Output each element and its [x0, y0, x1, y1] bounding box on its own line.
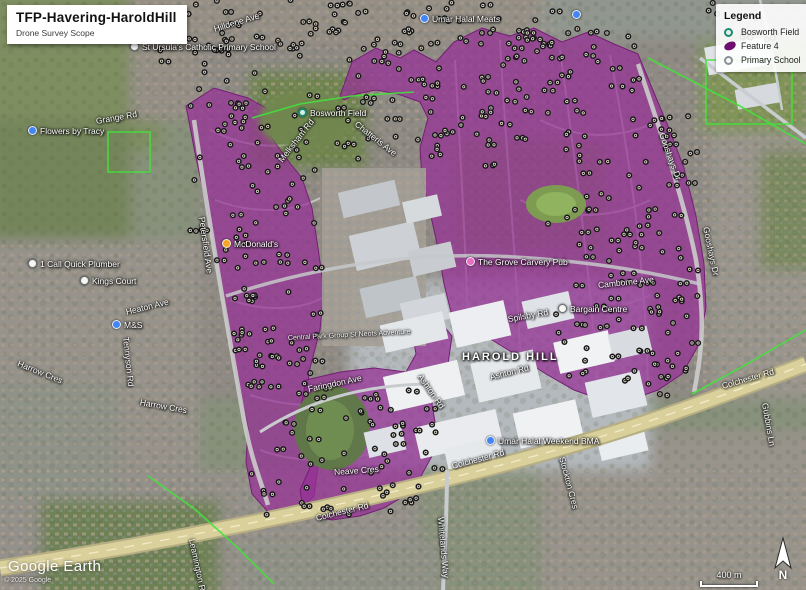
survey-marker: [292, 113, 297, 118]
survey-marker: [276, 356, 281, 361]
survey-marker: [308, 371, 313, 376]
survey-marker: [525, 38, 530, 43]
survey-marker: [591, 54, 596, 59]
poi-label: Flowers by Tracy: [28, 126, 104, 136]
survey-marker: [239, 212, 244, 217]
survey-marker: [265, 169, 270, 174]
survey-marker: [187, 36, 192, 41]
survey-marker: [443, 128, 448, 133]
survey-marker: [282, 204, 287, 209]
label-text: Umar Halal Meats: [432, 14, 500, 24]
survey-marker: [390, 98, 395, 103]
label-text: Flowers by Tracy: [40, 126, 104, 136]
compass-north-arrow[interactable]: N: [764, 536, 802, 582]
survey-marker: [340, 2, 345, 7]
bosworth-field-icon: [724, 28, 738, 37]
survey-marker: [320, 458, 325, 463]
survey-marker: [648, 123, 653, 128]
survey-marker: [706, 8, 711, 13]
survey-marker: [560, 73, 565, 78]
survey-marker: [438, 152, 443, 157]
area-label: HAROLD HILL: [462, 352, 559, 362]
survey-marker: [363, 396, 368, 401]
survey-marker: [577, 153, 582, 158]
survey-marker: [657, 231, 662, 236]
survey-marker: [356, 74, 361, 79]
survey-marker: [591, 45, 596, 50]
survey-marker: [646, 381, 651, 386]
survey-marker: [303, 260, 308, 265]
legend-item-feature-4: Feature 4: [724, 41, 806, 51]
survey-marker: [640, 326, 645, 331]
survey-marker: [318, 311, 323, 316]
survey-marker: [626, 376, 631, 381]
survey-marker: [416, 484, 421, 489]
survey-marker: [188, 104, 193, 109]
survey-marker: [411, 14, 416, 19]
survey-marker: [507, 41, 512, 46]
survey-marker: [291, 43, 296, 48]
survey-marker: [587, 207, 592, 212]
survey-marker: [252, 71, 257, 76]
survey-marker: [433, 133, 438, 138]
survey-marker: [633, 133, 638, 138]
survey-marker: [243, 347, 248, 352]
survey-marker: [529, 109, 534, 114]
survey-marker: [548, 80, 553, 85]
survey-marker: [577, 159, 582, 164]
survey-marker: [430, 96, 435, 101]
survey-marker: [605, 159, 610, 164]
survey-marker: [616, 317, 621, 322]
survey-marker: [188, 228, 193, 233]
survey-marker: [658, 392, 663, 397]
survey-marker: [274, 205, 279, 210]
survey-marker: [616, 238, 621, 243]
poi-white-poi-icon[interactable]: [80, 276, 89, 285]
survey-marker: [378, 405, 383, 410]
survey-marker: [505, 98, 510, 103]
survey-marker: [609, 273, 614, 278]
survey-marker: [310, 407, 315, 412]
survey-marker: [246, 164, 251, 169]
survey-marker: [290, 430, 295, 435]
survey-marker: [311, 312, 316, 317]
survey-marker: [264, 512, 269, 517]
survey-marker: [335, 3, 340, 8]
survey-marker: [207, 103, 212, 108]
survey-marker: [637, 224, 642, 229]
survey-marker: [247, 298, 252, 303]
poi-blue-poi-icon[interactable]: [112, 320, 121, 329]
survey-marker: [406, 27, 411, 32]
poi-pink-poi-icon[interactable]: [466, 257, 475, 266]
survey-marker: [313, 266, 318, 271]
survey-marker: [533, 18, 538, 23]
survey-marker: [599, 191, 604, 196]
poi-teal-poi-icon[interactable]: [298, 108, 307, 117]
poi-blue-poi-icon[interactable]: [572, 10, 581, 19]
survey-marker: [424, 407, 429, 412]
survey-marker: [609, 296, 614, 301]
survey-marker: [313, 26, 318, 31]
label-text: 1 Call Quick Plumber: [40, 259, 120, 269]
survey-marker: [621, 271, 626, 276]
survey-marker: [307, 93, 312, 98]
survey-marker: [299, 41, 304, 46]
survey-marker: [508, 122, 513, 127]
survey-marker: [243, 254, 248, 259]
survey-marker: [231, 213, 236, 218]
survey-marker: [684, 281, 689, 286]
survey-marker: [555, 80, 560, 85]
poi-blue-poi-icon[interactable]: [420, 14, 429, 23]
survey-marker: [278, 42, 283, 47]
survey-marker: [684, 366, 689, 371]
survey-marker: [373, 446, 378, 451]
survey-marker: [166, 59, 171, 64]
survey-marker: [710, 1, 715, 6]
survey-marker: [356, 156, 361, 161]
survey-marker: [595, 227, 600, 232]
survey-marker: [688, 151, 693, 156]
survey-marker: [229, 10, 234, 15]
survey-marker: [678, 256, 683, 261]
survey-marker: [672, 213, 677, 218]
survey-marker: [386, 61, 391, 66]
survey-marker: [222, 129, 227, 134]
survey-marker: [307, 504, 312, 509]
survey-marker: [269, 384, 274, 389]
survey-marker: [372, 59, 377, 64]
survey-marker: [257, 353, 262, 358]
survey-marker: [598, 325, 603, 330]
survey-marker: [514, 80, 519, 85]
survey-marker: [630, 88, 635, 93]
survey-marker: [581, 111, 586, 116]
survey-marker: [318, 408, 323, 413]
survey-marker: [675, 183, 680, 188]
survey-marker: [320, 359, 325, 364]
legend-item-bosworth-field: Bosworth Field: [724, 27, 806, 37]
survey-marker: [429, 41, 434, 46]
survey-marker: [322, 395, 327, 400]
survey-marker: [645, 223, 650, 228]
survey-marker: [229, 101, 234, 106]
survey-marker: [406, 388, 411, 393]
survey-marker: [587, 171, 592, 176]
survey-marker: [584, 52, 589, 57]
survey-marker: [655, 293, 660, 298]
survey-marker: [488, 3, 493, 8]
survey-marker: [428, 110, 433, 115]
feature-polygon-icon: [724, 42, 738, 50]
survey-marker: [589, 30, 594, 35]
poi-label: 1 Call Quick Plumber: [28, 259, 120, 269]
survey-marker: [240, 330, 245, 335]
survey-marker: [346, 141, 351, 146]
page-subtitle: Drone Survey Scope: [16, 28, 177, 38]
survey-marker: [667, 115, 672, 120]
survey-marker: [584, 254, 589, 259]
survey-marker: [404, 11, 409, 16]
survey-marker: [486, 143, 491, 148]
survey-marker: [505, 56, 510, 61]
survey-marker: [361, 100, 366, 105]
poi-label: [572, 10, 584, 20]
survey-marker: [584, 194, 589, 199]
survey-marker: [637, 77, 642, 82]
survey-marker: [645, 349, 650, 354]
survey-marker: [541, 44, 546, 49]
survey-marker: [417, 428, 422, 433]
survey-marker: [263, 327, 268, 332]
survey-marker: [481, 79, 486, 84]
survey-marker: [270, 492, 275, 497]
survey-marker: [233, 120, 238, 125]
survey-marker: [560, 55, 565, 60]
survey-marker: [312, 168, 317, 173]
survey-marker: [550, 55, 555, 60]
survey-marker: [646, 214, 651, 219]
survey-marker: [159, 59, 164, 64]
survey-marker: [414, 496, 419, 501]
survey-marker: [374, 392, 379, 397]
legend-item-label: Bosworth Field: [741, 27, 799, 37]
survey-marker: [247, 332, 252, 337]
survey-marker: [215, 0, 220, 3]
survey-marker: [358, 409, 363, 414]
survey-marker: [522, 59, 527, 64]
survey-marker: [397, 117, 402, 122]
survey-marker: [639, 232, 644, 237]
survey-marker: [581, 171, 586, 176]
survey-marker: [368, 101, 373, 106]
poi-white-poi-icon[interactable]: [28, 259, 37, 268]
label-text: Bosworth Field: [310, 108, 366, 118]
survey-marker: [419, 46, 424, 51]
survey-marker: [297, 155, 302, 160]
survey-marker: [392, 40, 397, 45]
survey-marker: [637, 185, 642, 190]
survey-marker: [400, 421, 405, 426]
scale-bar-label: 400 m: [700, 570, 758, 580]
survey-marker: [408, 497, 413, 502]
survey-marker: [301, 20, 306, 25]
survey-marker: [679, 297, 684, 302]
survey-marker: [232, 331, 237, 336]
survey-marker: [679, 213, 684, 218]
survey-marker: [370, 422, 375, 427]
survey-marker: [255, 140, 260, 145]
survey-marker: [618, 66, 623, 71]
survey-marker: [631, 117, 636, 122]
survey-marker: [525, 31, 530, 36]
survey-marker: [492, 162, 497, 167]
poi-label: Bargain Centre: [558, 304, 627, 314]
survey-marker: [516, 35, 521, 40]
survey-marker: [566, 74, 571, 79]
survey-marker: [186, 12, 191, 17]
survey-marker: [270, 354, 275, 359]
survey-marker: [577, 242, 582, 247]
survey-marker: [479, 41, 484, 46]
survey-marker: [575, 322, 580, 327]
survey-marker: [430, 422, 435, 427]
survey-marker: [415, 389, 420, 394]
survey-marker: [609, 238, 614, 243]
poi-blue-poi-icon[interactable]: [28, 126, 37, 135]
survey-marker: [194, 229, 199, 234]
survey-marker: [290, 182, 295, 187]
survey-marker: [252, 380, 257, 385]
survey-marker: [609, 84, 614, 89]
survey-marker: [586, 230, 591, 235]
survey-marker: [610, 66, 615, 71]
survey-marker: [628, 232, 633, 237]
survey-marker: [399, 431, 404, 436]
survey-marker: [550, 9, 555, 14]
survey-marker: [657, 309, 662, 314]
survey-marker: [276, 384, 281, 389]
survey-marker: [464, 39, 469, 44]
survey-marker: [491, 27, 496, 32]
satellite-map: [0, 0, 806, 590]
scale-bar-line: [700, 581, 758, 587]
survey-marker: [335, 141, 340, 146]
label-text: McDonald's: [234, 239, 278, 249]
poi-label: Umar Halal Meats: [420, 14, 500, 24]
survey-marker: [250, 183, 255, 188]
survey-marker: [384, 490, 389, 495]
survey-marker: [379, 59, 384, 64]
survey-marker: [397, 67, 402, 72]
survey-marker: [391, 433, 396, 438]
primary-school-icon: [724, 56, 738, 65]
survey-marker: [676, 246, 681, 251]
survey-marker: [257, 384, 262, 389]
survey-marker: [665, 393, 670, 398]
survey-marker: [284, 211, 289, 216]
poi-blue-poi-icon[interactable]: [486, 436, 495, 445]
survey-marker: [530, 36, 535, 41]
survey-marker: [671, 321, 676, 326]
survey-marker: [459, 123, 464, 128]
poi-white-poi-icon[interactable]: [558, 304, 567, 313]
survey-marker: [557, 9, 562, 14]
survey-marker: [308, 31, 313, 36]
survey-marker: [198, 155, 203, 160]
survey-marker: [562, 340, 567, 345]
poi-label: Umar Halal Weekend BMA: [486, 436, 599, 446]
survey-marker: [315, 396, 320, 401]
survey-marker: [304, 346, 309, 351]
survey-marker: [632, 369, 637, 374]
survey-marker: [237, 347, 242, 352]
survey-marker: [398, 42, 403, 47]
survey-marker: [263, 89, 268, 94]
survey-marker: [444, 7, 449, 12]
poi-label: Kings Court: [80, 276, 136, 286]
survey-marker: [687, 267, 692, 272]
survey-marker: [275, 164, 280, 169]
page-title: TFP-Havering-HaroldHill: [16, 10, 177, 25]
survey-marker: [483, 163, 488, 168]
survey-marker: [222, 258, 227, 263]
survey-marker: [535, 49, 540, 54]
survey-marker: [304, 140, 309, 145]
survey-marker: [433, 430, 438, 435]
survey-marker: [432, 466, 437, 471]
survey-marker: [262, 260, 267, 265]
survey-marker: [665, 358, 670, 363]
survey-marker: [288, 0, 293, 2]
survey-marker: [316, 437, 321, 442]
survey-marker: [573, 98, 578, 103]
survey-marker: [285, 261, 290, 266]
survey-marker: [656, 305, 661, 310]
survey-marker: [666, 374, 671, 379]
survey-marker: [617, 248, 622, 253]
survey-marker: [639, 245, 644, 250]
survey-marker: [407, 471, 412, 476]
survey-marker: [275, 447, 280, 452]
survey-marker: [429, 154, 434, 159]
survey-marker: [254, 34, 259, 39]
survey-marker: [666, 330, 671, 335]
survey-marker: [690, 341, 695, 346]
survey-marker: [564, 147, 569, 152]
survey-marker: [319, 265, 324, 270]
survey-marker: [650, 351, 655, 356]
survey-marker: [241, 119, 246, 124]
survey-marker: [620, 84, 625, 89]
survey-marker: [583, 323, 588, 328]
survey-marker: [260, 364, 265, 369]
survey-marker: [389, 408, 394, 413]
survey-marker: [396, 50, 401, 55]
survey-marker: [269, 339, 274, 344]
survey-marker: [512, 46, 517, 51]
survey-marker: [610, 354, 615, 359]
poi-orange-poi-icon[interactable]: [222, 239, 231, 248]
survey-marker: [382, 452, 387, 457]
survey-marker: [514, 54, 519, 59]
survey-marker: [672, 133, 677, 138]
survey-marker: [315, 94, 320, 99]
survey-marker: [240, 165, 245, 170]
survey-marker: [383, 50, 388, 55]
survey-marker: [241, 154, 246, 159]
survey-marker: [385, 117, 390, 122]
label-text: Kings Court: [92, 276, 136, 286]
survey-marker: [637, 348, 642, 353]
survey-marker: [566, 31, 571, 36]
survey-marker: [216, 128, 221, 133]
survey-marker: [285, 253, 290, 258]
survey-marker: [226, 52, 231, 57]
map-canvas[interactable]: St Ursula's Catholic Primary SchoolHilld…: [0, 0, 806, 590]
survey-marker: [348, 1, 353, 6]
survey-marker: [368, 397, 373, 402]
survey-marker: [372, 42, 377, 47]
survey-marker: [390, 483, 395, 488]
label-text: M&S: [124, 320, 142, 330]
survey-marker: [277, 252, 282, 257]
survey-marker: [237, 102, 242, 107]
survey-marker: [237, 227, 242, 232]
survey-marker: [487, 138, 492, 143]
